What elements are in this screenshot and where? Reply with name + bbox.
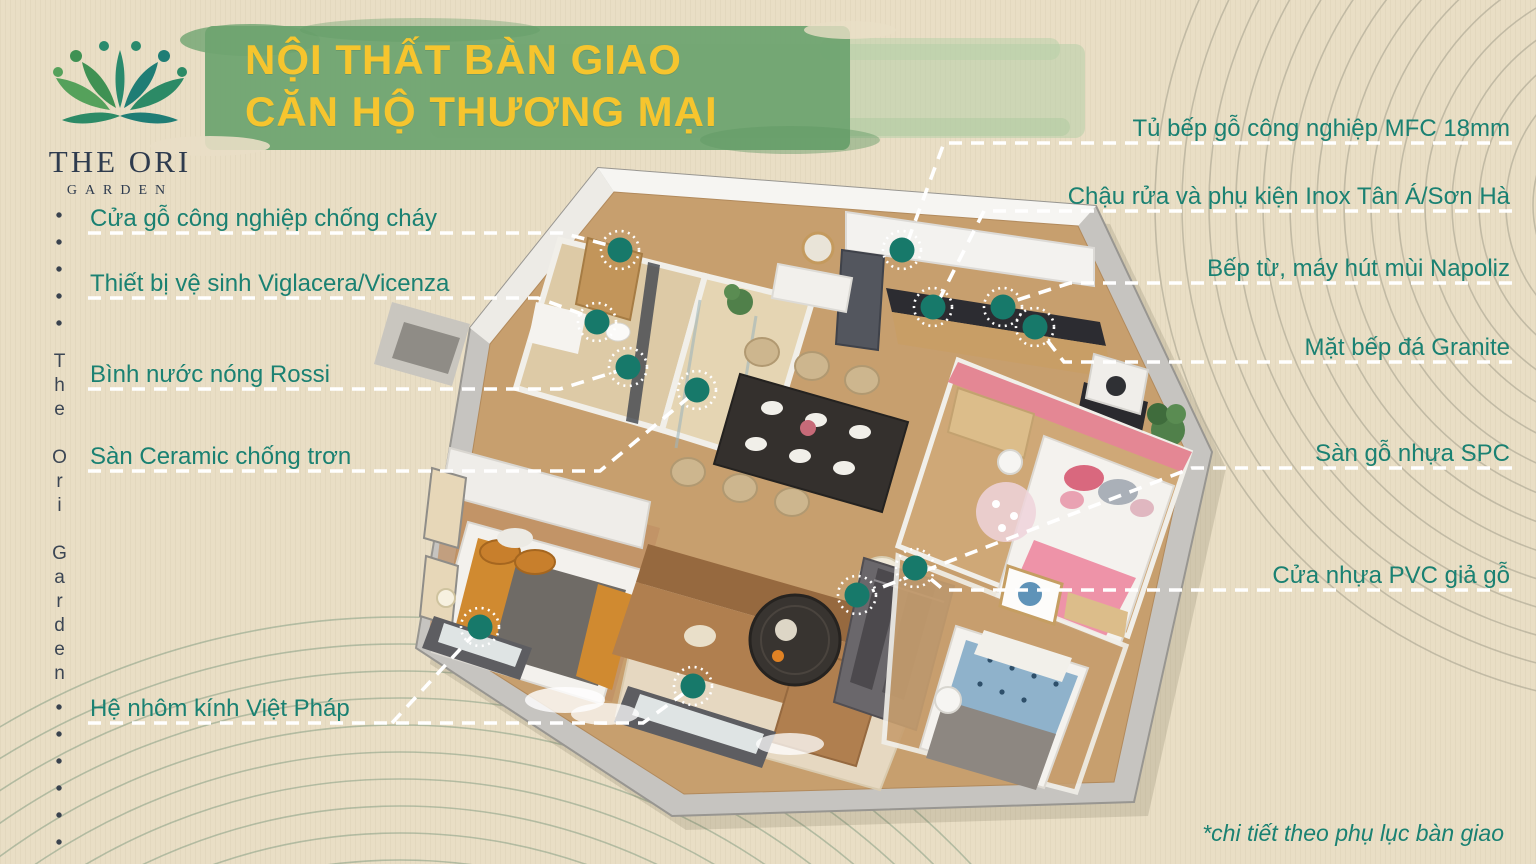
callout-spc-floor: Sàn gỗ nhựa SPC (1315, 440, 1510, 468)
brand-logo: THE ORI GARDEN (30, 30, 210, 199)
callout-sanitary-equipment: Thiết bị vệ sinh Viglacera/Vicenza (90, 270, 449, 298)
entrance-area (374, 302, 470, 386)
callout-induction-hob: Bếp từ, máy hút mùi Napoliz (1207, 255, 1510, 283)
page-title-line2: CĂN HỘ THƯƠNG MẠI (245, 86, 718, 138)
dotted-line-bottom (48, 697, 70, 847)
page-title: NỘI THẤT BÀN GIAO CĂN HỘ THƯƠNG MẠI (245, 34, 718, 138)
footnote: *chi tiết theo phụ lục bàn giao (1202, 820, 1504, 847)
callout-fireproof-door: Cửa gỗ công nghiệp chống cháy (90, 205, 437, 233)
callout-water-heater: Bình nước nóng Rossi (90, 361, 330, 389)
callout-ceramic-floor: Sàn Ceramic chống trơn (90, 443, 351, 471)
dotted-line-top (48, 205, 70, 343)
callout-pvc-door: Cửa nhựa PVC giả gỗ (1272, 562, 1510, 590)
garden-tree-emblem-icon (30, 30, 210, 135)
callout-sink-accessories: Chậu rửa và phụ kiện Inox Tân Á/Sơn Hà (1068, 183, 1510, 211)
side-vertical-text: The Ori Garden (48, 351, 70, 687)
brand-name: THE ORI (30, 144, 210, 180)
callout-aluminum-glass: Hệ nhôm kính Việt Pháp (90, 695, 350, 723)
callout-granite-countertop: Mặt bếp đá Granite (1305, 334, 1510, 362)
brand-subname: GARDEN (30, 183, 210, 199)
side-rail: The Ori Garden (48, 205, 70, 847)
page-title-line1: NỘI THẤT BÀN GIAO (245, 34, 718, 86)
apartment-floorplan (374, 168, 1226, 830)
callout-kitchen-cabinet: Tủ bếp gỗ công nghiệp MFC 18mm (1132, 115, 1510, 143)
infographic-page: THE ORI GARDEN NỘI THẤT BÀN GIAO CĂN HỘ … (0, 0, 1536, 864)
